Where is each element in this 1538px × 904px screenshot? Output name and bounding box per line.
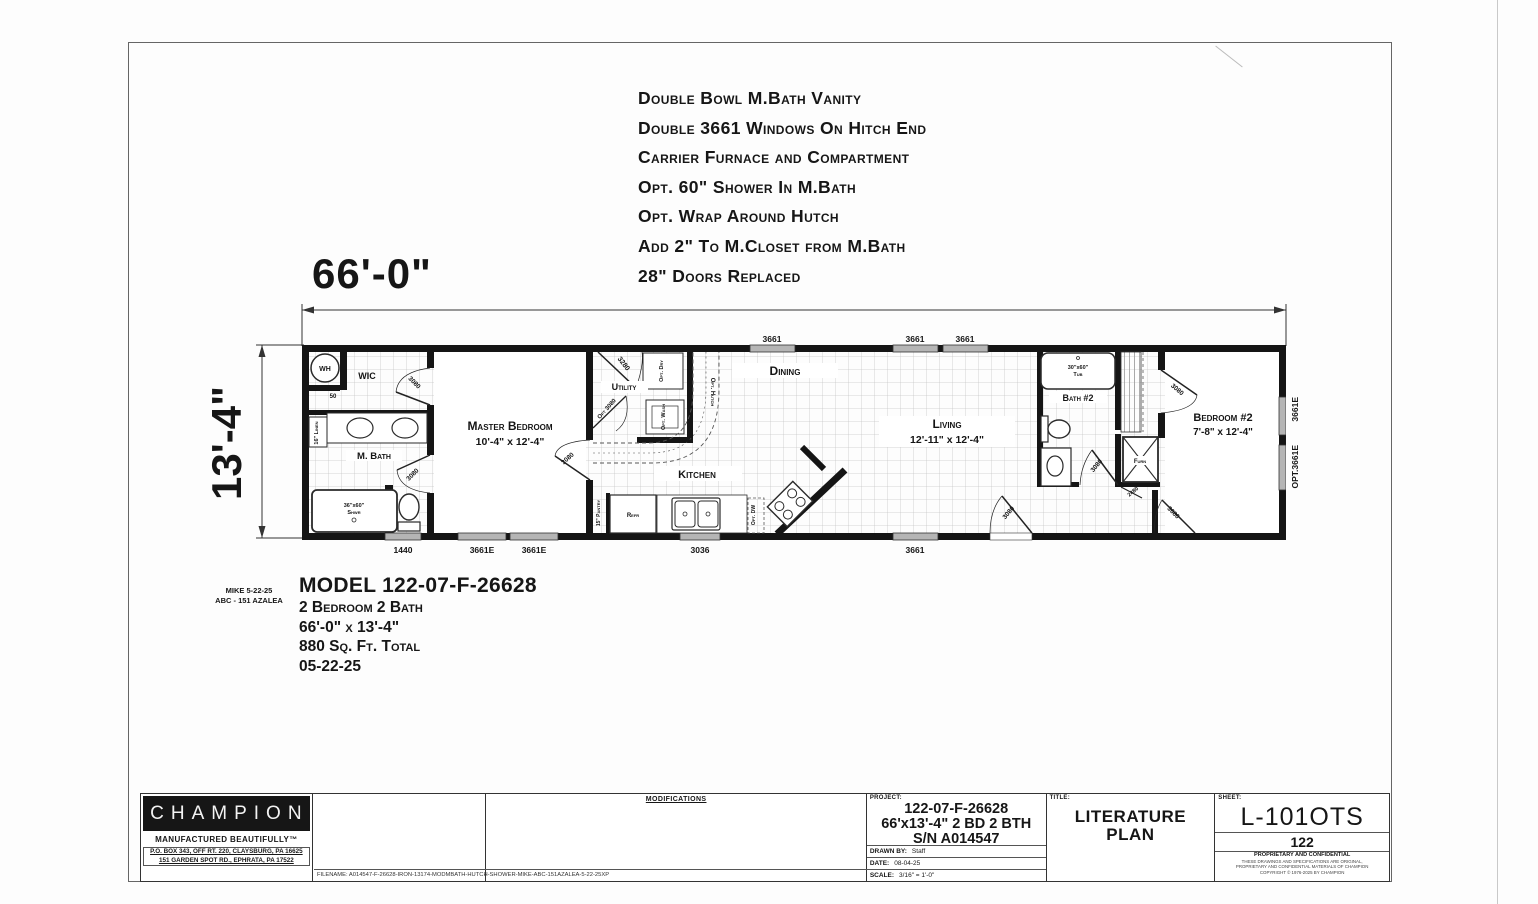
feature-line: Add 2" To M.Closet from M.Bath [638,232,926,262]
toilet [1048,420,1070,438]
date-row: DATE:08-04-25 [867,857,1046,869]
depth-dimension-line [248,338,304,546]
wic-label: WIC [358,371,376,381]
shower-drain [352,518,356,522]
kitchen-label: Kitchen [678,469,716,481]
model-number: MODEL 122-07-F-26628 [299,574,537,598]
svg-text:3661: 3661 [906,334,925,344]
date-value: 08-04-25 [894,860,920,867]
title-cell: TITLE: LITERATURE PLAN [1046,794,1215,881]
mbath-label: M. Bath [357,451,391,462]
toilet-tank [398,522,420,531]
sheet-title-line: LITERATURE [1047,808,1215,826]
utility-label: Utility [612,382,637,392]
tub-size-label: 30"x60" [1068,365,1089,371]
feature-line: Double 3661 Windows On Hitch End [638,114,926,144]
address-line: P.O. BOX 343, OFF RT. 220, CLAYSBURG, PA… [144,848,309,857]
sheet-cell: SHEET: L-101OTS 122 PROPRIETARY AND CONF… [1214,794,1389,881]
svg-text:3661E: 3661E [470,545,495,555]
opt-dw-label: Opt. DW [751,505,757,525]
toilet-tank [1041,416,1048,442]
bath2-label: Bath #2 [1063,393,1094,403]
wh-size-label: 50 [330,394,337,400]
feature-line: Double Bowl M.Bath Vanity [638,84,926,114]
tub-drain [1077,357,1080,360]
shower-label: Shwr [347,510,360,516]
feature-line: 28" Doors Replaced [638,262,926,292]
confidential-line: COPYRIGHT © 1976-2025 BY CHAMPION [1215,870,1389,876]
project-number: 122-07-F-26628 [867,802,1046,817]
filename-strip: FILENAME: A014547-F-26628-IRON-13174-MOD… [314,869,1008,881]
opt-wash-label: Opt. Wash [661,404,667,430]
right-opt-window-label: OPT.3661E [1290,445,1300,488]
svg-text:3661: 3661 [906,545,925,555]
wh-label: WH [319,366,331,373]
project-cell: PROJECT: 122-07-F-26628 66'x13'-4" 2 BD … [866,794,1046,881]
opt-hutch-label: Opt. Hutch [709,378,715,407]
svg-text:3661: 3661 [763,334,782,344]
sheet-number: L-101OTS [1215,803,1389,832]
toilet [399,494,419,520]
modifications-label: MODIFICATIONS [486,796,865,803]
master-bedroom-size: 10'-4" x 12'-4" [476,436,545,448]
bedroom2-floor [1165,352,1279,533]
title-label: TITLE: [1050,795,1070,801]
living-size: 12'-11" x 12'-4" [910,434,984,446]
sheet-title-line: PLAN [1047,826,1215,844]
furn-label: Furn [1134,459,1146,465]
svg-text:3661: 3661 [956,334,975,344]
feature-line: Opt. Wrap Around Hutch [638,202,926,232]
feature-line: Carrier Furnace and Compartment [638,143,926,173]
svg-text:3661E: 3661E [522,545,547,555]
dining-label: Dining [770,364,801,378]
feature-list: Double Bowl M.Bath Vanity Double 3661 Wi… [638,84,926,291]
opt-dry-label: Opt. Dry [659,360,665,382]
title-block: CHAMPION MANUFACTURED BEAUTIFULLY™ P.O. … [140,793,1390,882]
tub-label: Tub [1073,372,1082,378]
sink-bowl [347,418,373,438]
address-line: 151 GARDEN SPOT RD., EPHRATA, PA 17522 [144,857,309,866]
right-window-label: 3661E [1290,397,1300,422]
project-description: 66'x13'-4" 2 BD 2 BTH [867,817,1046,832]
sheet-label: SHEET: [1218,795,1241,801]
revision-note: MIKE 5-22-25 ABC - 151 AZALEA [193,586,305,606]
drain [706,512,710,516]
overall-depth-dimension: 13'-4" [203,363,247,523]
shower-size-label: 36"x60" [344,503,365,509]
confidential-line: PROPRIETARY AND CONFIDENTIAL MATERIALS O… [1215,864,1389,870]
model-date: 05-22-25 [299,657,537,677]
model-beds-baths: 2 Bedroom 2 Bath [299,598,537,618]
overall-width-dimension: 66'-0" [312,250,432,298]
date-label: DATE: [870,860,889,867]
revision-note-line: MIKE 5-22-25 [193,586,305,596]
bedroom2-label: Bedroom #2 [1193,412,1252,424]
bedroom2-size: 7'-8" x 12'-4" [1193,427,1253,438]
sink-bowl [392,418,418,438]
model-sqft: 880 Sq. Ft. Total [299,637,537,657]
master-bedroom-label: Master Bedroom [467,419,552,433]
floor-plan-sheet: Double Bowl M.Bath Vanity Double 3661 Wi… [0,0,1538,904]
wb-label: WB [682,438,690,443]
sink-bowl [1047,456,1063,476]
model-dimensions: 66'-0" x 13'-4" [299,618,537,638]
logo-cell: CHAMPION MANUFACTURED BEAUTIFULLY™ P.O. … [141,794,312,881]
pantry-label: 15" Pantry [596,500,602,527]
refr-label: Refr [627,513,639,519]
project-label: PROJECT: [870,795,902,801]
drain [683,512,687,516]
feature-line: Opt. 60" Shower In M.Bath [638,173,926,203]
drawn-by-row: DRAWN BY:Staff [867,845,1046,857]
svg-text:3036: 3036 [691,545,710,555]
entry-threshold [990,533,1032,540]
champion-logo: CHAMPION [143,796,310,831]
revision-note-line: ABC - 151 AZALEA [193,596,305,606]
address-block: P.O. BOX 343, OFF RT. 220, CLAYSBURG, PA… [143,847,310,866]
drawn-by-value: Staff [912,848,925,855]
sheet-sub-number: 122 [1215,832,1389,851]
model-info: MODEL 122-07-F-26628 2 Bedroom 2 Bath 66… [299,574,537,676]
tagline: MANUFACTURED BEAUTIFULLY™ [143,835,310,844]
svg-text:1440: 1440 [394,545,413,555]
confidential-notice: PROPRIETARY AND CONFIDENTIAL THESE DRAWI… [1215,851,1389,875]
blank-cell [312,794,486,881]
wardrobe-closet [1121,352,1141,432]
linen-label: 16" Linen [314,421,320,444]
scan-artifact-line [1497,0,1498,904]
living-label: Living [932,417,961,431]
drawn-by-label: DRAWN BY: [870,848,907,855]
floor-plan: Master Bedroom 10'-4" x 12'-4" Living 12… [302,330,1286,558]
modifications-cell: MODIFICATIONS [485,794,865,881]
